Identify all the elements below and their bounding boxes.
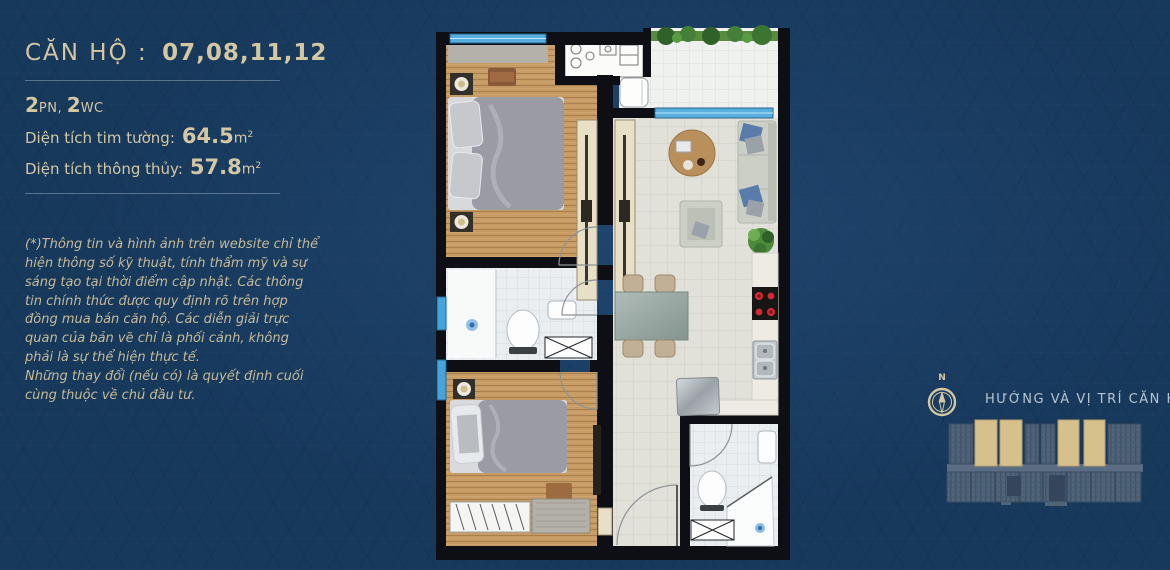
coffee-table-icon: [669, 130, 715, 176]
location-heading: HƯỚNG VÀ VỊ TRÍ CĂN HỘ: [985, 392, 1170, 407]
nightstand-icon: [450, 212, 473, 232]
disclaimer-paragraph-2: Những thay đổi (nếu có) là quyết định cu…: [25, 368, 320, 406]
shaft-box: [545, 337, 592, 358]
compass: N: [924, 370, 960, 424]
bedroom-unit: PN,: [39, 101, 67, 116]
unit-block: [949, 424, 973, 464]
nightstand-icon: [453, 379, 475, 399]
divider-top: [25, 80, 280, 81]
bathroom-sink-icon: [758, 431, 776, 463]
apartment-title-label: CĂN HỘ :: [25, 40, 148, 66]
unit-block: [1108, 424, 1141, 464]
building-tab: [1001, 502, 1011, 505]
unit-block: [1025, 424, 1039, 464]
gross-area-row: Diện tích tim tường: 64.5 m2: [25, 124, 317, 148]
apartment-info-panel: CĂN HỘ : 07,08,11,12 2PN, 2WC Diện tích …: [25, 40, 317, 194]
net-area-row: Diện tích thông thủy: 57.8 m2: [25, 155, 317, 179]
wc-unit: WC: [81, 101, 104, 116]
armchair-icon: [680, 201, 722, 247]
drying-rack-icon: [450, 502, 530, 532]
gross-area-label: Diện tích tim tường:: [25, 129, 175, 147]
fridge-icon: [676, 377, 719, 415]
compass-icon: N: [924, 370, 960, 424]
stool-icon: [546, 483, 572, 499]
building-mini-map-image: [945, 418, 1145, 506]
sink-icon: [753, 341, 777, 379]
cooktop-icon: [752, 287, 778, 320]
dining-chair-icon: [655, 340, 675, 357]
bedroom-count: 2: [25, 93, 39, 117]
unit-block-highlight: [975, 420, 997, 466]
wardrobe-icon: [577, 120, 597, 300]
tv-console-icon: [615, 120, 635, 300]
bed-icon: [448, 97, 564, 210]
wc-count: 2: [67, 93, 81, 117]
disclaimer-text: (*)Thông tin và hình ảnh trên website ch…: [25, 236, 320, 406]
apartment-unit-numbers: 07,08,11,12: [162, 40, 327, 66]
building-tab: [1045, 502, 1067, 506]
top-unit-row: [949, 420, 1141, 466]
bedroom-1-curtain: [448, 45, 548, 63]
core-block: [1049, 475, 1065, 501]
gross-area-unit: m2: [234, 130, 253, 147]
shoe-cabinet-icon: [598, 508, 612, 535]
sofa-icon: [738, 121, 776, 223]
dining-chair-icon: [623, 275, 643, 292]
unit-block-highlight: [1058, 420, 1079, 466]
net-area-value: 57.8: [190, 155, 242, 179]
bathroom-1-window: [437, 297, 446, 330]
unit-block-highlight: [1084, 420, 1105, 466]
kitchen-counter: [752, 253, 778, 403]
disclaimer-paragraph-1: (*)Thông tin và hình ảnh trên website ch…: [25, 236, 320, 368]
apartment-specs: 2PN, 2WC Diện tích tim tường: 64.5 m2 Di…: [25, 93, 317, 179]
nightstand-icon: [450, 73, 473, 95]
bedroom-2-window: [437, 360, 446, 400]
net-area-label: Diện tích thông thủy:: [25, 160, 183, 178]
shaft-box: [691, 520, 734, 540]
unit-block: [1041, 424, 1055, 464]
balcony-planter: [651, 25, 778, 45]
page-title: CĂN HỘ : 07,08,11,12: [25, 40, 317, 66]
dining-chair-icon: [655, 275, 675, 292]
bottom-unit-row: [947, 472, 1141, 506]
compass-north-label: N: [938, 373, 946, 383]
floor-plan-image: [430, 25, 790, 563]
washing-machine-icon: [620, 78, 648, 107]
floor-plan: [430, 25, 790, 563]
toilet-icon: [698, 471, 726, 511]
unit-block-highlight: [1000, 420, 1022, 466]
bed-icon: [450, 400, 567, 473]
building-mini-map: [945, 418, 1145, 506]
divider-bottom: [25, 193, 280, 194]
net-area-unit: m2: [242, 161, 261, 178]
dining-table-icon: [615, 292, 688, 340]
tv-icon: [593, 425, 601, 495]
desk-icon: [532, 499, 590, 533]
core-block: [1007, 476, 1021, 496]
dining-chair-icon: [623, 340, 643, 357]
rooms-summary: 2PN, 2WC: [25, 93, 317, 117]
toilet-icon: [507, 310, 539, 354]
page-background: { "page": { "background": "#17395c", "ac…: [0, 0, 1170, 570]
shower-area: [448, 270, 496, 358]
gross-area-value: 64.5: [182, 124, 234, 148]
